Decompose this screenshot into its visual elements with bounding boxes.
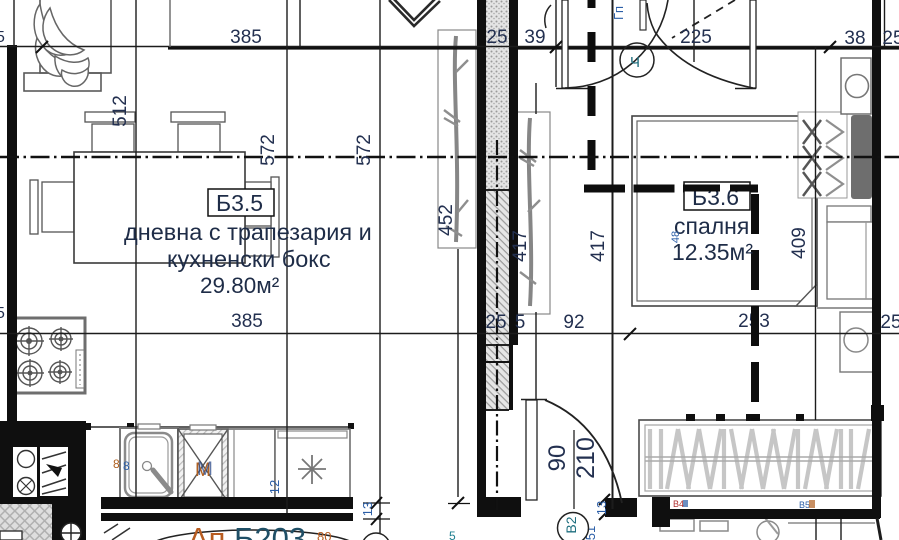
svg-text:417: 417: [588, 230, 609, 262]
svg-text:дневна с трапезария и: дневна с трапезария и: [124, 219, 372, 245]
svg-text:409: 409: [789, 227, 810, 259]
svg-text:25: 25: [880, 312, 899, 333]
svg-text:92: 92: [563, 312, 584, 333]
svg-text:кухненски бокс: кухненски бокс: [167, 246, 331, 272]
svg-text:5: 5: [449, 529, 456, 540]
svg-text:48: 48: [670, 231, 682, 243]
svg-text:512: 512: [110, 95, 131, 127]
svg-text:13: 13: [360, 502, 375, 516]
svg-text:572: 572: [258, 134, 279, 166]
svg-text:385: 385: [231, 311, 263, 332]
svg-text:80: 80: [317, 529, 331, 540]
svg-text:225: 225: [680, 27, 712, 48]
svg-text:39: 39: [524, 27, 545, 48]
svg-text:572: 572: [354, 134, 375, 166]
svg-text:Гп: Гп: [611, 6, 626, 20]
svg-text:38: 38: [844, 28, 865, 49]
svg-text:5: 5: [0, 305, 5, 322]
svg-text:25: 25: [486, 27, 507, 48]
svg-text:В2: В2: [563, 516, 579, 533]
svg-text:385: 385: [230, 27, 262, 48]
svg-text:8: 8: [123, 459, 130, 473]
svg-text:25: 25: [485, 312, 506, 333]
svg-text:90: 90: [544, 445, 571, 472]
svg-text:29.80м²: 29.80м²: [200, 273, 280, 298]
svg-text:5: 5: [515, 312, 526, 333]
svg-text:12.35м²: 12.35м²: [672, 239, 753, 265]
svg-text:В5: В5: [799, 500, 810, 510]
svg-text:25: 25: [882, 28, 899, 49]
svg-text:452: 452: [436, 204, 457, 236]
svg-text:12: 12: [267, 480, 282, 494]
svg-text:Ч: Ч: [630, 54, 640, 71]
svg-text:210: 210: [572, 437, 600, 479]
svg-text:5: 5: [0, 29, 5, 46]
svg-text:Б3.5: Б3.5: [216, 190, 263, 216]
svg-text:М: М: [197, 459, 213, 480]
svg-text:спалня: спалня: [674, 213, 749, 239]
svg-text:Ап.Б203: Ап.Б203: [188, 521, 306, 540]
svg-text:В4: В4: [673, 499, 684, 509]
svg-text:417: 417: [510, 230, 531, 262]
svg-text:8: 8: [113, 457, 120, 471]
svg-text:13: 13: [594, 501, 609, 515]
